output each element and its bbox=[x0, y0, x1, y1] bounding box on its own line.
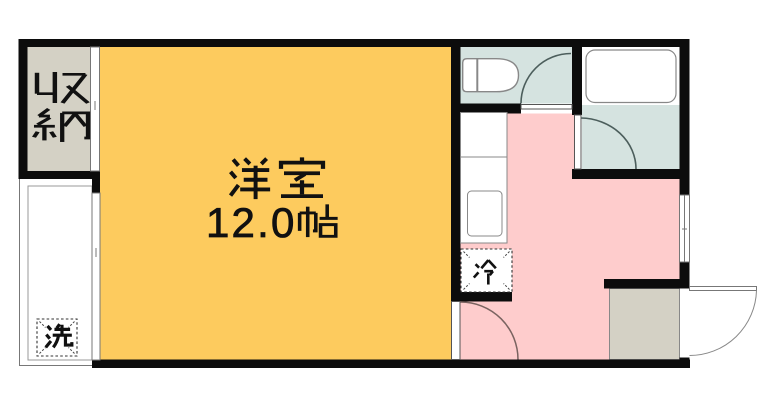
svg-text:12.0: 12.0 bbox=[206, 199, 297, 246]
